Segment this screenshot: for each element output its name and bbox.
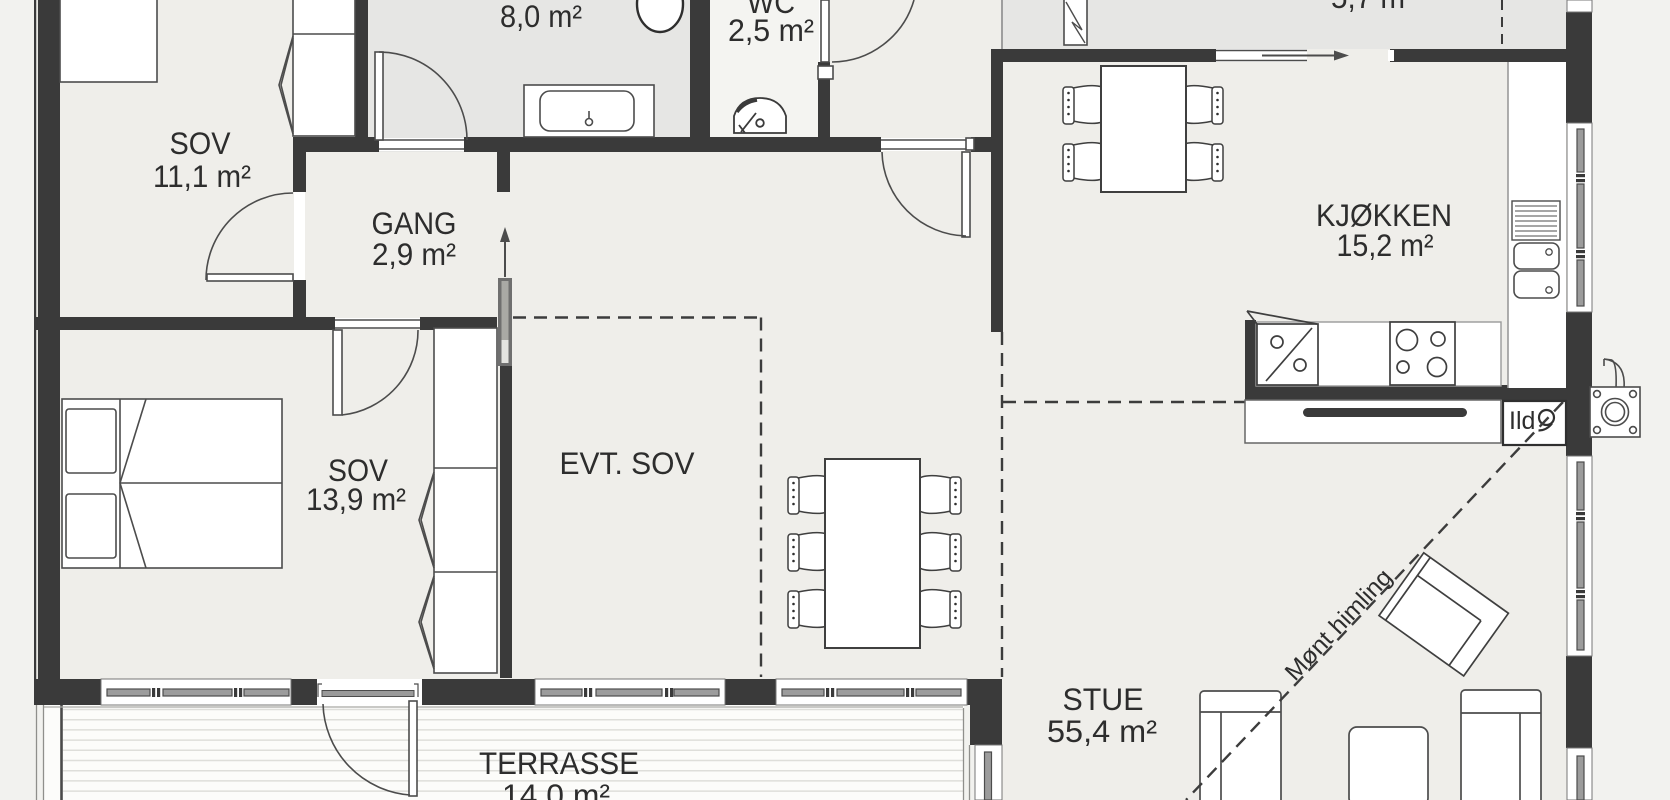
svg-text:SOV: SOV [170, 125, 231, 161]
svg-text:55,4 m²: 55,4 m² [1047, 713, 1157, 749]
svg-text:STUE: STUE [1063, 681, 1144, 717]
svg-text:15,2 m²: 15,2 m² [1337, 227, 1434, 263]
svg-text:Ild: Ild [1509, 407, 1535, 435]
svg-text:14,0 m²: 14,0 m² [502, 777, 610, 800]
svg-text:8,0 m²: 8,0 m² [500, 0, 582, 34]
svg-text:2,5 m²: 2,5 m² [728, 12, 814, 48]
svg-text:2,9 m²: 2,9 m² [372, 236, 456, 272]
svg-text:11,1 m²: 11,1 m² [153, 158, 251, 194]
svg-text:EVT. SOV: EVT. SOV [560, 445, 695, 481]
svg-text:TERRASSE: TERRASSE [479, 745, 639, 781]
svg-text:5,7 m²: 5,7 m² [1331, 0, 1415, 15]
svg-text:13,9 m²: 13,9 m² [306, 481, 406, 517]
